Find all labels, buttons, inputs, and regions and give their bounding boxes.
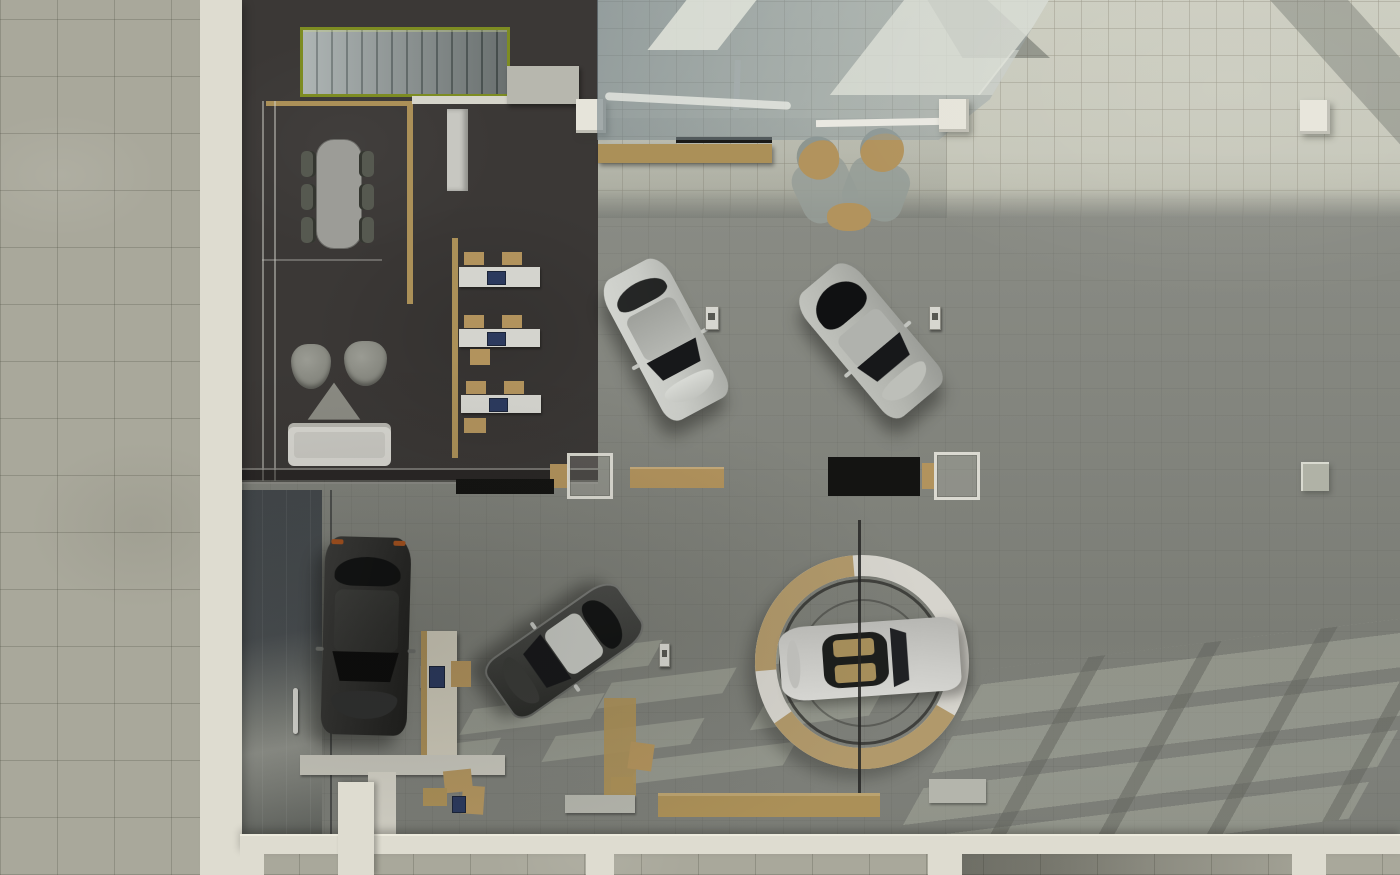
sofa <box>288 423 391 466</box>
desk-monitor <box>487 332 506 346</box>
wood-cube-seat <box>627 741 655 771</box>
desk-chair <box>504 381 524 394</box>
wood-bench <box>922 463 934 489</box>
meeting-table <box>316 139 362 249</box>
desk-chair <box>470 349 490 365</box>
sign-stand <box>929 306 941 330</box>
bench <box>929 779 986 803</box>
crate <box>423 788 447 806</box>
stool <box>827 203 871 231</box>
desk-chair <box>502 315 522 328</box>
crate-screen <box>452 796 466 813</box>
counter-monitor <box>429 666 445 688</box>
storage-box <box>507 66 579 104</box>
car-convertible <box>778 616 963 702</box>
car-roof <box>334 590 399 653</box>
desk-chair <box>466 381 486 394</box>
framed-column <box>934 452 980 500</box>
storefront-wall <box>240 834 1400 854</box>
car-mirror <box>530 621 538 630</box>
wood-bench-long <box>658 793 880 817</box>
car-seat <box>834 663 877 684</box>
glass-wall-track-horizontal <box>262 259 382 261</box>
car-mirror <box>408 649 416 653</box>
storefront-mullion <box>1292 849 1326 875</box>
exterior-wall-left <box>200 0 242 875</box>
meeting-chair <box>359 151 374 177</box>
column <box>1301 462 1329 491</box>
sign-stand <box>659 643 670 667</box>
car-dark-suv <box>320 536 411 736</box>
door-handle <box>293 688 298 734</box>
bench <box>565 795 635 813</box>
desk-chair <box>464 252 484 265</box>
entry-glass-door <box>238 490 322 835</box>
car-mirror <box>843 370 852 378</box>
sign-stand <box>705 306 719 330</box>
glass-wall-track <box>274 101 276 481</box>
cabinet <box>447 109 468 191</box>
meeting-chair <box>359 217 374 243</box>
reception-desk <box>598 144 772 163</box>
crate <box>611 777 633 792</box>
glazing-seam-line <box>858 520 861 798</box>
wood-bench <box>630 467 724 488</box>
display-mat <box>456 479 554 494</box>
desk-monitor <box>489 398 508 412</box>
meeting-chair <box>301 217 316 243</box>
wood-partition-vertical-2 <box>452 238 458 458</box>
counter-chair <box>451 661 471 687</box>
car-mirror <box>316 647 324 651</box>
storefront-mullion <box>240 849 264 875</box>
desk-monitor <box>487 271 506 285</box>
car-hood <box>331 691 397 720</box>
storefront-mullion <box>928 849 962 875</box>
car-windshield <box>329 651 402 683</box>
sidewalk-left <box>0 0 202 875</box>
column <box>939 99 969 132</box>
car-windshield <box>889 625 909 688</box>
wall-ledge <box>412 96 510 104</box>
wood-partition-vertical <box>407 101 413 304</box>
car-silver-suv <box>791 256 949 425</box>
car-trunk <box>786 640 802 688</box>
meeting-chair <box>359 184 374 210</box>
car-mirror <box>573 683 581 692</box>
car-white-suv <box>596 252 734 425</box>
low-wall <box>300 755 505 775</box>
desk-chair <box>464 418 486 433</box>
sofa-seat <box>294 432 385 458</box>
storefront-mullion <box>586 849 614 875</box>
meeting-chair <box>301 151 316 177</box>
storefront-pier <box>338 782 374 875</box>
desk-chair <box>464 315 484 328</box>
column <box>1300 100 1330 134</box>
mezzanine-edge <box>605 92 791 110</box>
service-counter <box>421 631 457 761</box>
glass-wall-track <box>262 101 264 481</box>
skylight-reflection <box>647 0 756 50</box>
display-mat <box>828 457 920 496</box>
car-mirror <box>631 364 640 371</box>
staircase <box>300 27 510 97</box>
car-seat <box>833 637 876 658</box>
framed-column <box>567 453 613 499</box>
showroom-render <box>0 0 1400 875</box>
car-rear-glass <box>335 556 401 587</box>
sidewalk-shadow <box>962 852 1302 875</box>
car-mirror <box>903 320 912 328</box>
desk-chair <box>502 252 522 265</box>
wood-partition-top <box>266 101 412 106</box>
meeting-chair <box>301 184 316 210</box>
